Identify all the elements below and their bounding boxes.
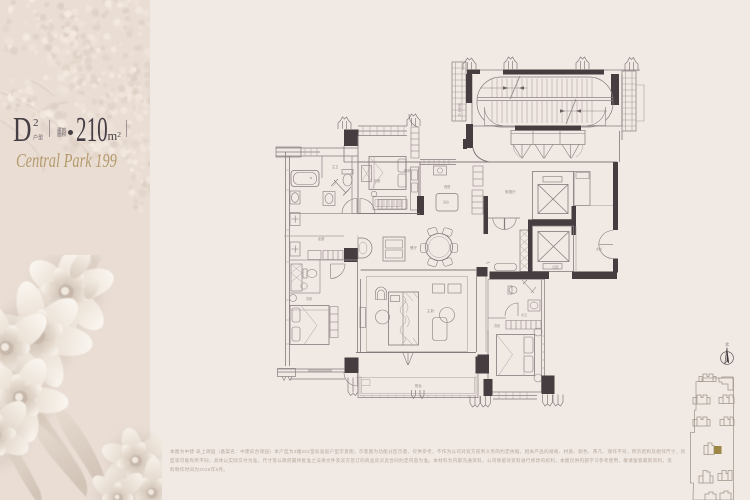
svg-text:餐厅: 餐厅	[410, 245, 418, 250]
svg-text:岛台: 岛台	[443, 199, 449, 204]
svg-text:设备平台: 设备平台	[458, 102, 462, 117]
svg-text:走廊: 走廊	[318, 236, 325, 241]
svg-text:公区: 公区	[552, 265, 559, 269]
svg-text:玄关: 玄关	[596, 246, 602, 251]
svg-text:西厨: 西厨	[444, 184, 451, 189]
svg-text:北: 北	[725, 342, 729, 347]
svg-text:主卫: 主卫	[332, 164, 339, 169]
svg-text:次卧: 次卧	[494, 323, 501, 328]
svg-text:次卧: 次卧	[306, 296, 313, 301]
svg-text:家庭厅: 家庭厅	[505, 189, 516, 194]
svg-text:主卧: 主卧	[427, 308, 435, 313]
svg-text:次卫: 次卫	[521, 312, 527, 317]
svg-text:阳台: 阳台	[415, 383, 422, 388]
svg-text:厨房: 厨房	[404, 168, 411, 173]
svg-text:卧室: 卧室	[374, 178, 380, 183]
